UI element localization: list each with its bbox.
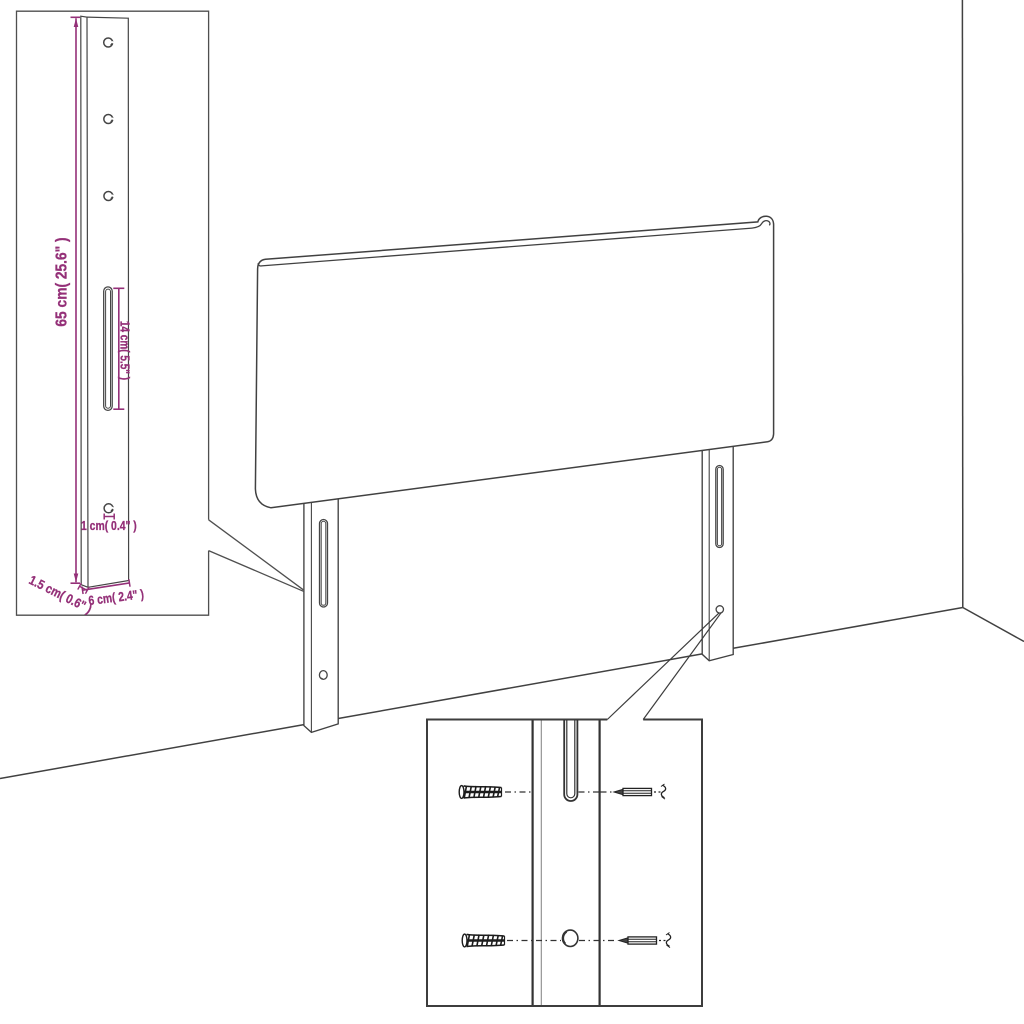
svg-text:14 cm( 5.5" ): 14 cm( 5.5" ) bbox=[117, 321, 132, 380]
svg-text:65 cm( 25.6" ): 65 cm( 25.6" ) bbox=[54, 237, 71, 326]
svg-text:1 cm( 0.4" ): 1 cm( 0.4" ) bbox=[81, 519, 137, 533]
